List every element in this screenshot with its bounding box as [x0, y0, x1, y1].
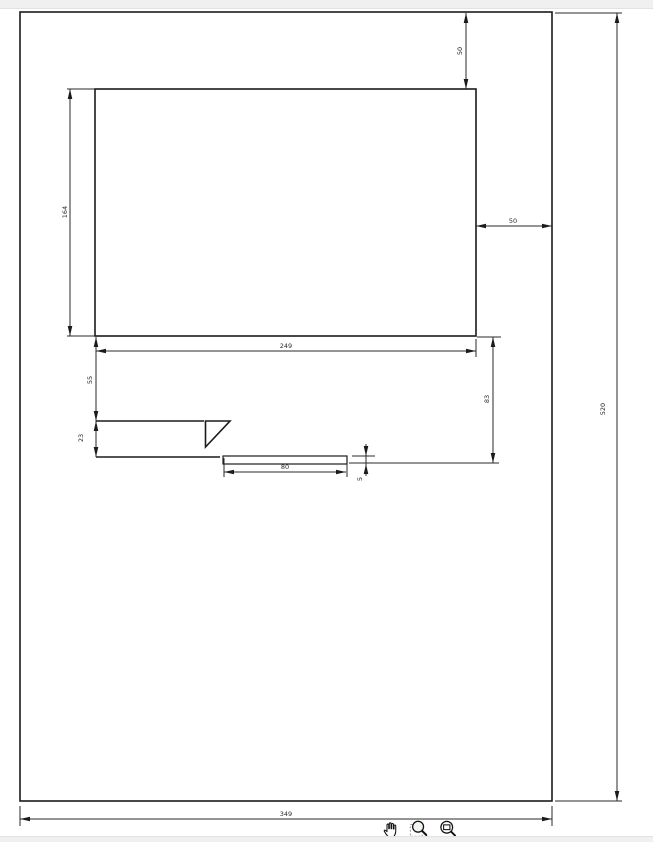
- dim-label-sheet-height: 520: [599, 403, 607, 415]
- panel-outline: [95, 89, 476, 336]
- dim-label-lower-section: 83: [483, 395, 491, 403]
- cad-drawing-viewer: 164 50 50 249 55 23 83 80 5 349 520: [0, 0, 653, 842]
- sheet-outline: [20, 12, 552, 801]
- dim-label-panel-right-offset: 50: [509, 217, 517, 225]
- drawing-canvas[interactable]: 164 50 50 249 55 23 83 80 5 349 520: [0, 0, 653, 842]
- dim-label-bar-thickness: 5: [356, 477, 364, 481]
- dim-label-notch-height: 23: [77, 434, 85, 442]
- triangle-cutout: [206, 421, 231, 447]
- bottom-chrome-strip: [0, 836, 653, 842]
- dim-label-panel-width: 249: [280, 342, 292, 350]
- dim-label-bar-length: 80: [281, 463, 289, 471]
- dim-label-sheet-width: 349: [280, 810, 292, 818]
- dim-label-panel-top-offset: 50: [456, 47, 464, 55]
- dim-label-offset-below-panel: 55: [86, 376, 94, 384]
- dim-label-panel-height: 164: [61, 206, 69, 218]
